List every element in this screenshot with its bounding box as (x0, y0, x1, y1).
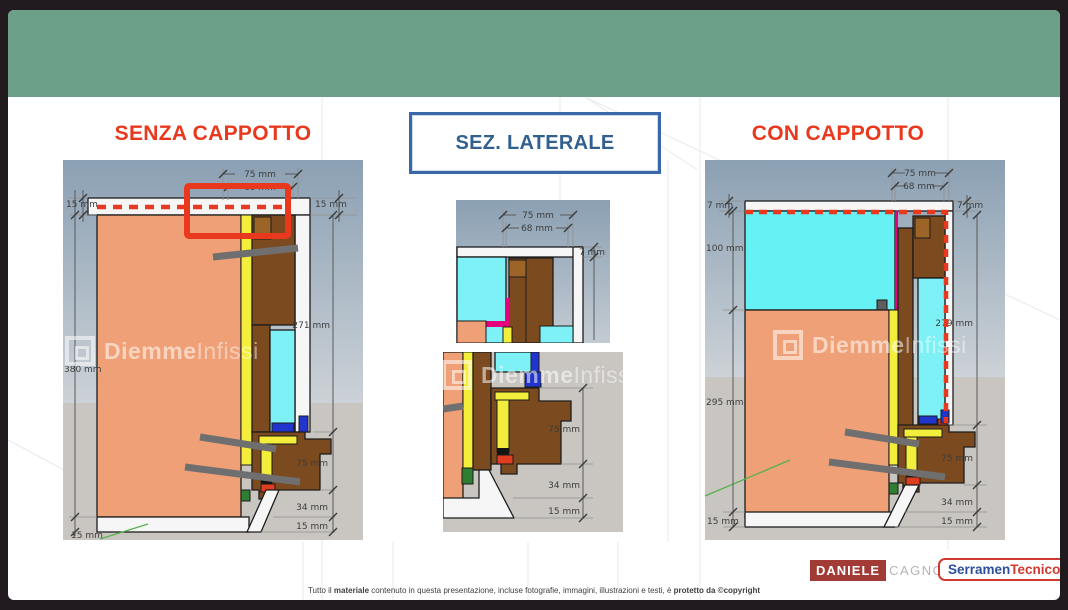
dim-label-68mm: 68 mm (903, 182, 935, 192)
frame-jamb (898, 228, 913, 432)
dim-label-7mm: 7 mm (579, 248, 605, 258)
dim-label-15mm-right: 15 mm (296, 522, 328, 532)
section-title-box: SEZ. LATERALE (409, 112, 661, 174)
dim-label-15mm-top-left: 15 mm (66, 200, 98, 210)
logo-daniele-badge: DANIELE (810, 560, 886, 581)
dim-label-7mm-right: 7 mm (957, 201, 983, 211)
dim-label-75mm: 75 mm (522, 211, 554, 221)
cappotto-insulation (745, 211, 895, 310)
gasket-red (497, 455, 513, 464)
copyright-line: Tutto il materiale contenuto in questa p… (8, 586, 1060, 595)
dim-label-100mm: 100 mm (706, 244, 744, 254)
dim-label-279mm: 279 mm (935, 319, 973, 329)
copyright-bold: protetto da ©copyright (674, 586, 760, 595)
foam-strip-horizontal (495, 392, 529, 400)
foam-strip (463, 352, 473, 468)
diagram-lateral-bottom: 75 mm 34 mm 15 mm (443, 352, 623, 532)
dim-label-75mm-right: 75 mm (941, 454, 973, 464)
frame-insert (509, 260, 526, 277)
foam-strip-vertical (497, 400, 509, 452)
dim-label-75mm-right: 75 mm (296, 459, 328, 469)
logo-tecnico-text: Tecnico (1010, 562, 1060, 577)
plaster-bottom-band (745, 512, 895, 527)
hardware-blue (272, 423, 294, 432)
dim-label-15mm-bottom-left: 15 mm (707, 517, 739, 527)
masonry-wall (745, 310, 889, 517)
gasket-red (906, 477, 920, 485)
dim-label-75mm: 75 mm (904, 169, 936, 179)
hardware-blue (525, 372, 541, 387)
dim-label-34mm: 34 mm (941, 498, 973, 508)
glass-pane-edge (540, 326, 573, 343)
diagram-con-cappotto: 75 mm 68 mm 7 mm 7 mm 100 mm 295 mm 15 m… (705, 160, 1005, 540)
frame-jamb (473, 352, 491, 470)
hardware-blue (919, 416, 937, 424)
dim-label-34mm: 34 mm (296, 503, 328, 513)
wall-section-drawing (705, 201, 975, 527)
dim-label-75mm: 75 mm (244, 170, 276, 180)
glass-pane (270, 330, 295, 432)
seal-green (241, 490, 250, 501)
section-title-senza-cappotto: SENZA CAPPOTTO (63, 122, 363, 146)
wall-section-drawing (88, 198, 331, 539)
plaster-bottom-band (97, 517, 249, 532)
dim-label-271mm: 271 mm (292, 321, 330, 331)
dim-label-34mm: 34 mm (548, 481, 580, 491)
slide: SENZA CAPPOTTO SEZ. LATERALE CON CAPPOTT… (8, 10, 1060, 600)
dim-label-15mm-right: 15 mm (941, 517, 973, 527)
seal-green (889, 483, 898, 494)
frame-head-insert (915, 218, 930, 238)
foam-strip-horizontal (904, 429, 942, 437)
gasket-black (497, 448, 509, 455)
glass-pane (918, 278, 945, 425)
masonry-wall (457, 321, 486, 343)
section-title-con-cappotto: CON CAPPOTTO (698, 122, 978, 146)
logo-serramen-text: Serramen (948, 562, 1010, 577)
gasket-magenta (486, 321, 510, 327)
dim-label-15mm-bottom-left: 15 mm (71, 531, 103, 540)
dim-label-7mm-left: 7 mm (707, 201, 733, 211)
anchor-screw (443, 406, 463, 409)
section-title-sez-laterale: SEZ. LATERALE (455, 132, 614, 155)
dim-label-295mm: 295 mm (706, 398, 744, 408)
frame-jamb (252, 325, 270, 432)
dim-label-15mm-top-right: 15 mm (315, 200, 347, 210)
bracket-gray (877, 300, 887, 310)
dim-label-380mm: 380 mm (64, 365, 102, 375)
plaster-top-band (745, 201, 953, 211)
plaster-band (457, 247, 583, 257)
header-bar (8, 10, 1060, 97)
dim-label-68mm: 68 mm (521, 224, 553, 234)
copyright-text: Tutto il (308, 586, 334, 595)
copyright-bold: materiale (334, 586, 369, 595)
dim-label-15mm: 15 mm (548, 507, 580, 517)
serramentecnico-logo: SerramenTecnico (938, 558, 1060, 581)
seal-green (462, 468, 473, 484)
foam-strip-horizontal (259, 436, 297, 444)
diagram-lateral-top: 75 mm 68 mm 7 mm (456, 200, 610, 343)
hardware-blue (531, 352, 539, 372)
copyright-text: contenuto in questa presentazione, inclu… (369, 586, 674, 595)
dim-label-75mm: 75 mm (548, 425, 580, 435)
masonry-wall (443, 352, 463, 504)
slide-frame: SENZA CAPPOTTO SEZ. LATERALE CON CAPPOTT… (0, 0, 1068, 610)
foam-strip (503, 327, 512, 343)
plaster-reveal (573, 247, 583, 343)
hardware-blue (299, 416, 308, 432)
diagram-senza-cappotto: 75 mm 68 mm 15 mm 15 mm 380 mm 15 mm 271… (63, 160, 363, 540)
